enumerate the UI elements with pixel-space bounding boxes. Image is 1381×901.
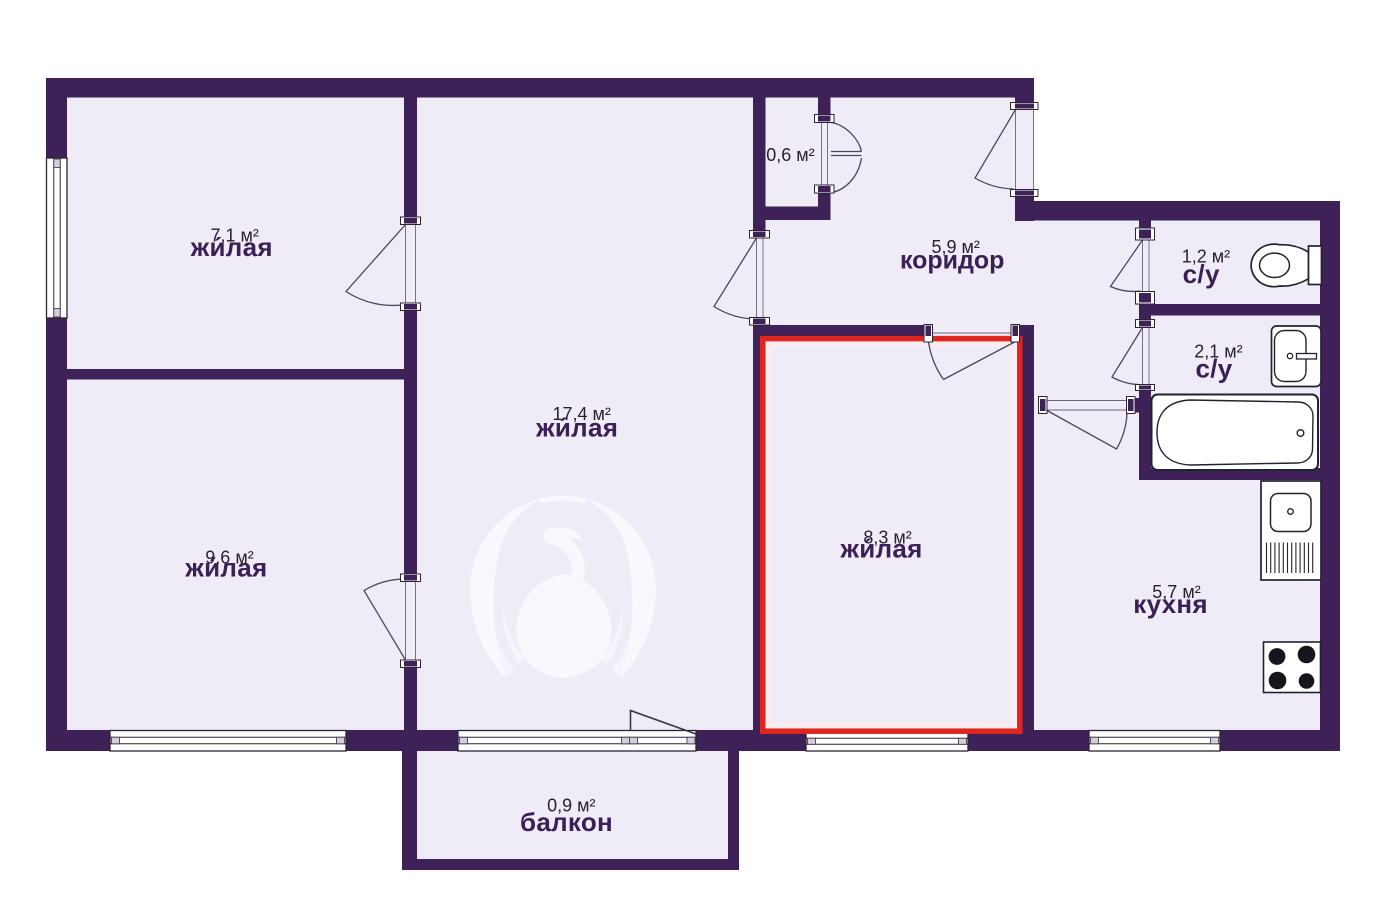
svg-text:жи́лая: жи́лая xyxy=(840,534,923,564)
svg-text:0,6 м²: 0,6 м² xyxy=(766,145,814,165)
svg-text:жи́лая: жи́лая xyxy=(535,413,618,443)
svg-text:жи́лая: жи́лая xyxy=(190,232,273,262)
svg-text:с/у: с/у xyxy=(1183,259,1220,289)
svg-text:коридор: коридор xyxy=(900,247,1005,275)
svg-text:балкон: балкон xyxy=(520,807,613,837)
svg-text:с/у: с/у xyxy=(1195,354,1232,384)
svg-text:жи́лая: жи́лая xyxy=(184,553,267,583)
svg-text:кухня: кухня xyxy=(1133,589,1208,619)
